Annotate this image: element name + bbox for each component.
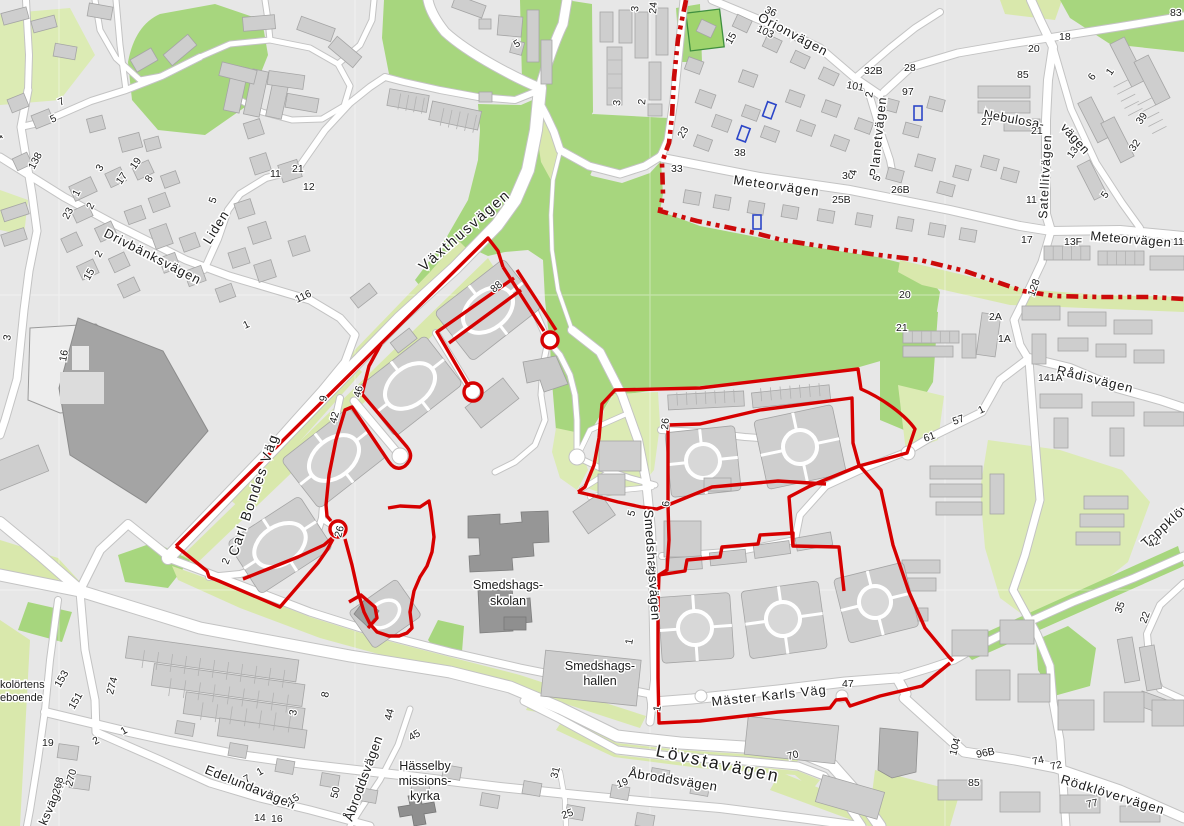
svg-text:13F: 13F	[1064, 236, 1082, 248]
svg-text:kolörtens: kolörtens	[0, 679, 45, 691]
svg-text:16: 16	[271, 813, 283, 825]
svg-text:14: 14	[254, 812, 266, 824]
svg-text:missions-: missions-	[399, 774, 452, 788]
svg-text:26B: 26B	[891, 184, 910, 196]
svg-text:21: 21	[896, 322, 908, 334]
svg-text:3: 3	[611, 99, 623, 106]
svg-text:19: 19	[42, 737, 54, 749]
svg-text:18: 18	[1059, 31, 1071, 43]
svg-text:1A: 1A	[998, 333, 1011, 345]
svg-text:141A: 141A	[1038, 372, 1063, 384]
svg-text:6: 6	[660, 500, 672, 507]
svg-text:24: 24	[647, 1, 660, 14]
svg-text:25B: 25B	[832, 194, 851, 206]
svg-text:11: 11	[1026, 194, 1037, 206]
svg-text:skolan: skolan	[490, 594, 526, 608]
svg-text:27: 27	[981, 116, 993, 128]
svg-text:20: 20	[899, 289, 911, 301]
svg-text:47: 47	[842, 678, 854, 690]
svg-text:28: 28	[904, 62, 916, 74]
svg-text:83: 83	[1170, 7, 1182, 19]
svg-text:2A: 2A	[989, 311, 1002, 323]
svg-text:12: 12	[303, 181, 315, 193]
svg-text:21: 21	[292, 163, 304, 175]
svg-text:85: 85	[1017, 69, 1029, 81]
svg-text:20: 20	[1028, 43, 1040, 55]
svg-text:eboende: eboende	[0, 692, 43, 704]
svg-text:38: 38	[734, 147, 746, 159]
svg-text:21: 21	[1031, 125, 1043, 137]
svg-text:2: 2	[636, 98, 648, 105]
svg-text:Smedshags-: Smedshags-	[565, 659, 635, 673]
svg-text:Hässelby: Hässelby	[399, 759, 451, 773]
svg-text:26: 26	[659, 417, 672, 430]
svg-text:33: 33	[671, 163, 683, 175]
svg-text:hallen: hallen	[583, 674, 616, 688]
svg-text:3: 3	[629, 5, 641, 12]
svg-text:11: 11	[1173, 236, 1184, 248]
svg-text:97: 97	[902, 86, 914, 98]
svg-text:16: 16	[57, 349, 71, 363]
svg-text:85: 85	[968, 777, 980, 789]
svg-text:32B: 32B	[864, 65, 883, 77]
svg-text:kyrka: kyrka	[410, 789, 440, 803]
svg-text:Smedshags-: Smedshags-	[473, 578, 543, 592]
svg-text:17: 17	[1021, 234, 1033, 246]
svg-text:11: 11	[270, 168, 281, 180]
